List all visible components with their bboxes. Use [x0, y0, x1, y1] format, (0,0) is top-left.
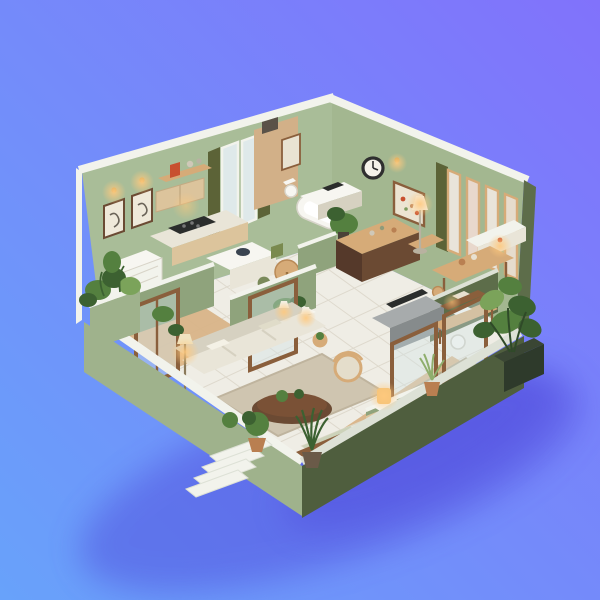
indoor-plant [152, 306, 174, 322]
window-pane [222, 142, 238, 232]
cylinder-bedside-lamp [377, 388, 391, 404]
island-top [206, 242, 276, 270]
counter-top [150, 210, 248, 248]
wall-sconce-icon [139, 177, 144, 182]
plant-pot [424, 382, 440, 396]
front-left-wall [84, 322, 302, 516]
sofa-back [174, 302, 312, 360]
bedroom [296, 386, 428, 468]
dining-table [432, 246, 514, 282]
front-walls [84, 318, 524, 518]
tall-grass-plant [296, 408, 328, 450]
glass-partition-frame [392, 324, 436, 416]
window-pane [448, 170, 460, 255]
pillow [378, 409, 404, 421]
tv-screen [386, 289, 428, 308]
vase [196, 158, 201, 163]
plant-pot [396, 438, 414, 454]
white-stool [451, 335, 465, 349]
curtain-left [208, 147, 220, 241]
study-nook [372, 289, 498, 412]
side-table [313, 333, 328, 348]
wood-stool [469, 300, 480, 311]
bathtub [293, 192, 347, 233]
bathroom [254, 116, 347, 232]
wall-sconce-icon [394, 157, 399, 162]
desk [432, 302, 498, 331]
front-right-wall [302, 336, 524, 518]
sofa-pillow [206, 339, 230, 350]
glass-partition-frame [444, 296, 486, 384]
lamp-glows [102, 153, 512, 411]
window-pane [467, 178, 479, 263]
counter-front [172, 222, 248, 266]
terrace-planter [78, 251, 141, 350]
vent-grille-icon [262, 117, 278, 134]
pampas-grass [388, 402, 420, 438]
wall-top-trim [79, 97, 334, 170]
window-pane [505, 194, 517, 279]
headboard [366, 394, 422, 426]
small-lamp [279, 301, 289, 308]
building-shadow-dark [264, 343, 576, 561]
window-pane [486, 186, 498, 271]
door-frames-left [136, 280, 296, 388]
framed-sketch-2 [132, 189, 152, 228]
partitions [108, 250, 498, 342]
media-cabinet-top [372, 296, 444, 328]
wall-shelf [440, 290, 486, 310]
building-shadow [55, 317, 600, 600]
printer [450, 306, 472, 315]
wood-floor-entry [120, 302, 252, 368]
partition-wall-dark [430, 272, 498, 342]
wall-sconce-icon [111, 187, 116, 192]
red-book [170, 162, 180, 178]
sideboard-top [336, 218, 420, 254]
black-decor-object [236, 248, 250, 256]
background [0, 0, 600, 600]
dark-planter-top [494, 338, 544, 362]
floor-lamp-shade [177, 334, 193, 344]
dresser-front [124, 258, 162, 300]
dining-room [412, 196, 526, 310]
door-frames-right [392, 296, 486, 416]
wall-clock-icon [363, 158, 383, 178]
plant-pot [338, 232, 349, 241]
front-right-cap [302, 332, 520, 462]
framed-sketch-1 [104, 199, 124, 238]
sage-blanket [302, 426, 384, 468]
gas-cooktop [168, 216, 216, 234]
glass-door-frame [250, 280, 296, 370]
headboard-partition [366, 388, 424, 452]
island-front [230, 254, 276, 290]
wood-stool [433, 287, 444, 298]
table-plant [294, 389, 304, 399]
sofa-pillow [258, 319, 282, 330]
table-plant [276, 390, 288, 402]
sideboard-front [362, 232, 420, 282]
banquette-back [466, 220, 526, 247]
gradient-backdrop [0, 0, 600, 600]
living-room [174, 301, 384, 436]
dresser-top [108, 250, 162, 272]
wood-panel-wall [254, 116, 298, 210]
coffee-table [252, 394, 332, 424]
bathtub-basin [302, 199, 340, 226]
glass-door-frame [136, 290, 178, 388]
black-laptop [322, 182, 344, 191]
pillow [392, 416, 416, 428]
sideboard-side [336, 240, 362, 282]
small-lamp [301, 307, 311, 314]
planter-cap [78, 282, 140, 308]
floor-lamp-shade [412, 196, 428, 210]
tile-grid [100, 110, 600, 600]
green-ottoman [258, 277, 271, 290]
foot-bench [296, 434, 348, 458]
planter-face [90, 290, 140, 350]
partition-wall [230, 268, 316, 340]
media-cabinet-front [390, 306, 444, 352]
dining-curtain [436, 162, 448, 252]
floating-shelf [158, 164, 212, 182]
wall-outer-face [516, 180, 536, 337]
vase [187, 161, 193, 167]
low-partition [298, 234, 336, 280]
wall-top-trim [330, 98, 528, 180]
front-left-cap [96, 318, 302, 462]
shelf-box [452, 291, 470, 299]
fern-plant [420, 354, 444, 380]
window-pane [242, 136, 256, 225]
rattan-armchair [335, 355, 361, 381]
banquette-seat [478, 227, 526, 261]
wall-sconce-icon [497, 241, 502, 246]
curtain-right [258, 129, 270, 219]
wood-stool [451, 294, 462, 305]
bed-mattress [302, 408, 428, 468]
hallway [258, 207, 444, 297]
back-right-wall [330, 98, 536, 337]
dark-planter-front [504, 344, 544, 392]
potted-monstera [330, 213, 358, 235]
wood-floor-corridor [332, 356, 502, 464]
console-table [408, 234, 444, 250]
olive-chair [271, 243, 283, 259]
planter-box [262, 304, 316, 326]
back-left-wall [76, 97, 334, 324]
peninsula-counter [300, 182, 362, 205]
indoor-plant [168, 324, 184, 336]
toilet-tank [283, 178, 296, 185]
bistro-table [275, 260, 299, 284]
floor [100, 110, 600, 600]
area-rug [216, 354, 384, 436]
entry-steps [186, 437, 272, 497]
corridor-rug [404, 358, 494, 412]
plant-pot [302, 452, 322, 468]
green-ottoman [271, 285, 284, 298]
red-book [498, 238, 503, 243]
wall-cabinet [156, 178, 204, 212]
plant-pot [248, 438, 266, 452]
isometric-floorplan-render [0, 0, 600, 600]
kitchen [150, 182, 362, 290]
sofa-seat [182, 312, 326, 374]
corner-monstera [472, 275, 545, 392]
framed-print [282, 134, 300, 170]
small-bush [222, 412, 238, 428]
botanical-art-frame [394, 182, 424, 226]
front-potted-plants [222, 354, 444, 468]
toilet [285, 185, 297, 197]
partition-wall [118, 266, 214, 340]
wall-shelf [372, 398, 402, 411]
